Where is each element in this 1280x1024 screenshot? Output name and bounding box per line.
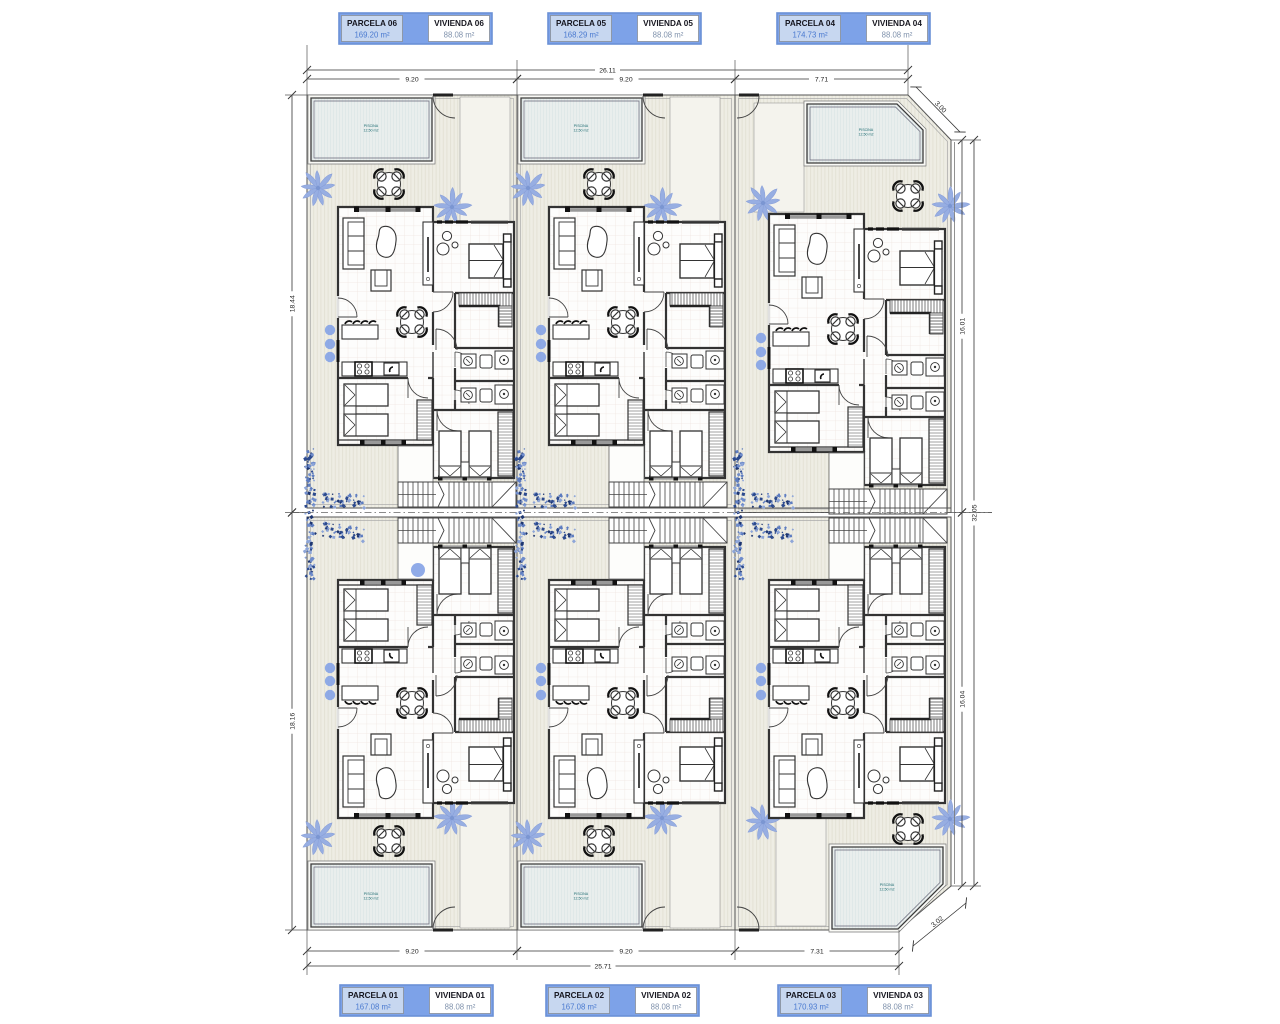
- svg-text:32.05: 32.05: [971, 504, 978, 521]
- svg-text:7.31: 7.31: [810, 948, 823, 955]
- svg-text:168.29 m²: 168.29 m²: [563, 31, 599, 40]
- svg-text:3.02: 3.02: [930, 915, 945, 929]
- svg-text:18.44: 18.44: [289, 295, 296, 312]
- svg-text:PISCINA: PISCINA: [364, 892, 379, 896]
- svg-text:88.08 m²: 88.08 m²: [653, 31, 684, 40]
- svg-text:16.01: 16.01: [959, 318, 966, 335]
- svg-text:12,50 m2: 12,50 m2: [364, 897, 379, 901]
- svg-text:PISCINA: PISCINA: [364, 124, 379, 128]
- svg-text:88.08 m²: 88.08 m²: [444, 31, 475, 40]
- svg-text:12,50 m2: 12,50 m2: [880, 888, 895, 892]
- svg-text:9.20: 9.20: [619, 948, 632, 955]
- svg-text:169.20 m²: 169.20 m²: [354, 31, 390, 40]
- svg-text:88.08 m²: 88.08 m²: [651, 1003, 682, 1012]
- svg-text:VIVIENDA 06: VIVIENDA 06: [434, 19, 484, 28]
- svg-text:9.20: 9.20: [619, 76, 632, 83]
- svg-text:VIVIENDA 02: VIVIENDA 02: [641, 991, 691, 1000]
- svg-text:PISCINA: PISCINA: [880, 883, 895, 887]
- svg-text:18.16: 18.16: [289, 713, 296, 730]
- svg-text:167.08 m²: 167.08 m²: [561, 1003, 597, 1012]
- svg-text:12,50 m2: 12,50 m2: [574, 129, 589, 133]
- svg-text:12,50 m2: 12,50 m2: [574, 897, 589, 901]
- svg-text:167.08 m²: 167.08 m²: [355, 1003, 391, 1012]
- svg-text:PARCELA 05: PARCELA 05: [556, 19, 606, 28]
- svg-text:170.93 m²: 170.93 m²: [793, 1003, 829, 1012]
- svg-text:9.20: 9.20: [405, 76, 418, 83]
- svg-text:9.20: 9.20: [405, 948, 418, 955]
- svg-text:PISCINA: PISCINA: [574, 892, 589, 896]
- svg-text:PARCELA 03: PARCELA 03: [786, 991, 836, 1000]
- svg-text:16.04: 16.04: [959, 691, 966, 708]
- svg-text:VIVIENDA 04: VIVIENDA 04: [872, 19, 922, 28]
- svg-text:7.71: 7.71: [815, 76, 828, 83]
- svg-text:88.08 m²: 88.08 m²: [882, 31, 913, 40]
- svg-text:VIVIENDA 05: VIVIENDA 05: [643, 19, 693, 28]
- svg-text:PISCINA: PISCINA: [574, 124, 589, 128]
- svg-text:12,50 m2: 12,50 m2: [859, 133, 874, 137]
- svg-text:88.08 m²: 88.08 m²: [445, 1003, 476, 1012]
- svg-text:PARCELA 01: PARCELA 01: [348, 991, 398, 1000]
- svg-text:88.08 m²: 88.08 m²: [883, 1003, 914, 1012]
- svg-text:25.71: 25.71: [594, 963, 611, 970]
- svg-text:PARCELA 04: PARCELA 04: [785, 19, 835, 28]
- svg-text:PARCELA 06: PARCELA 06: [347, 19, 397, 28]
- svg-text:VIVIENDA 01: VIVIENDA 01: [435, 991, 485, 1000]
- svg-text:12,50 m2: 12,50 m2: [364, 129, 379, 133]
- svg-text:174.73 m²: 174.73 m²: [792, 31, 828, 40]
- svg-text:3.00: 3.00: [933, 100, 947, 115]
- svg-text:PISCINA: PISCINA: [859, 128, 874, 132]
- svg-text:PARCELA 02: PARCELA 02: [554, 991, 604, 1000]
- svg-text:26.11: 26.11: [599, 67, 616, 74]
- svg-text:VIVIENDA 03: VIVIENDA 03: [873, 991, 923, 1000]
